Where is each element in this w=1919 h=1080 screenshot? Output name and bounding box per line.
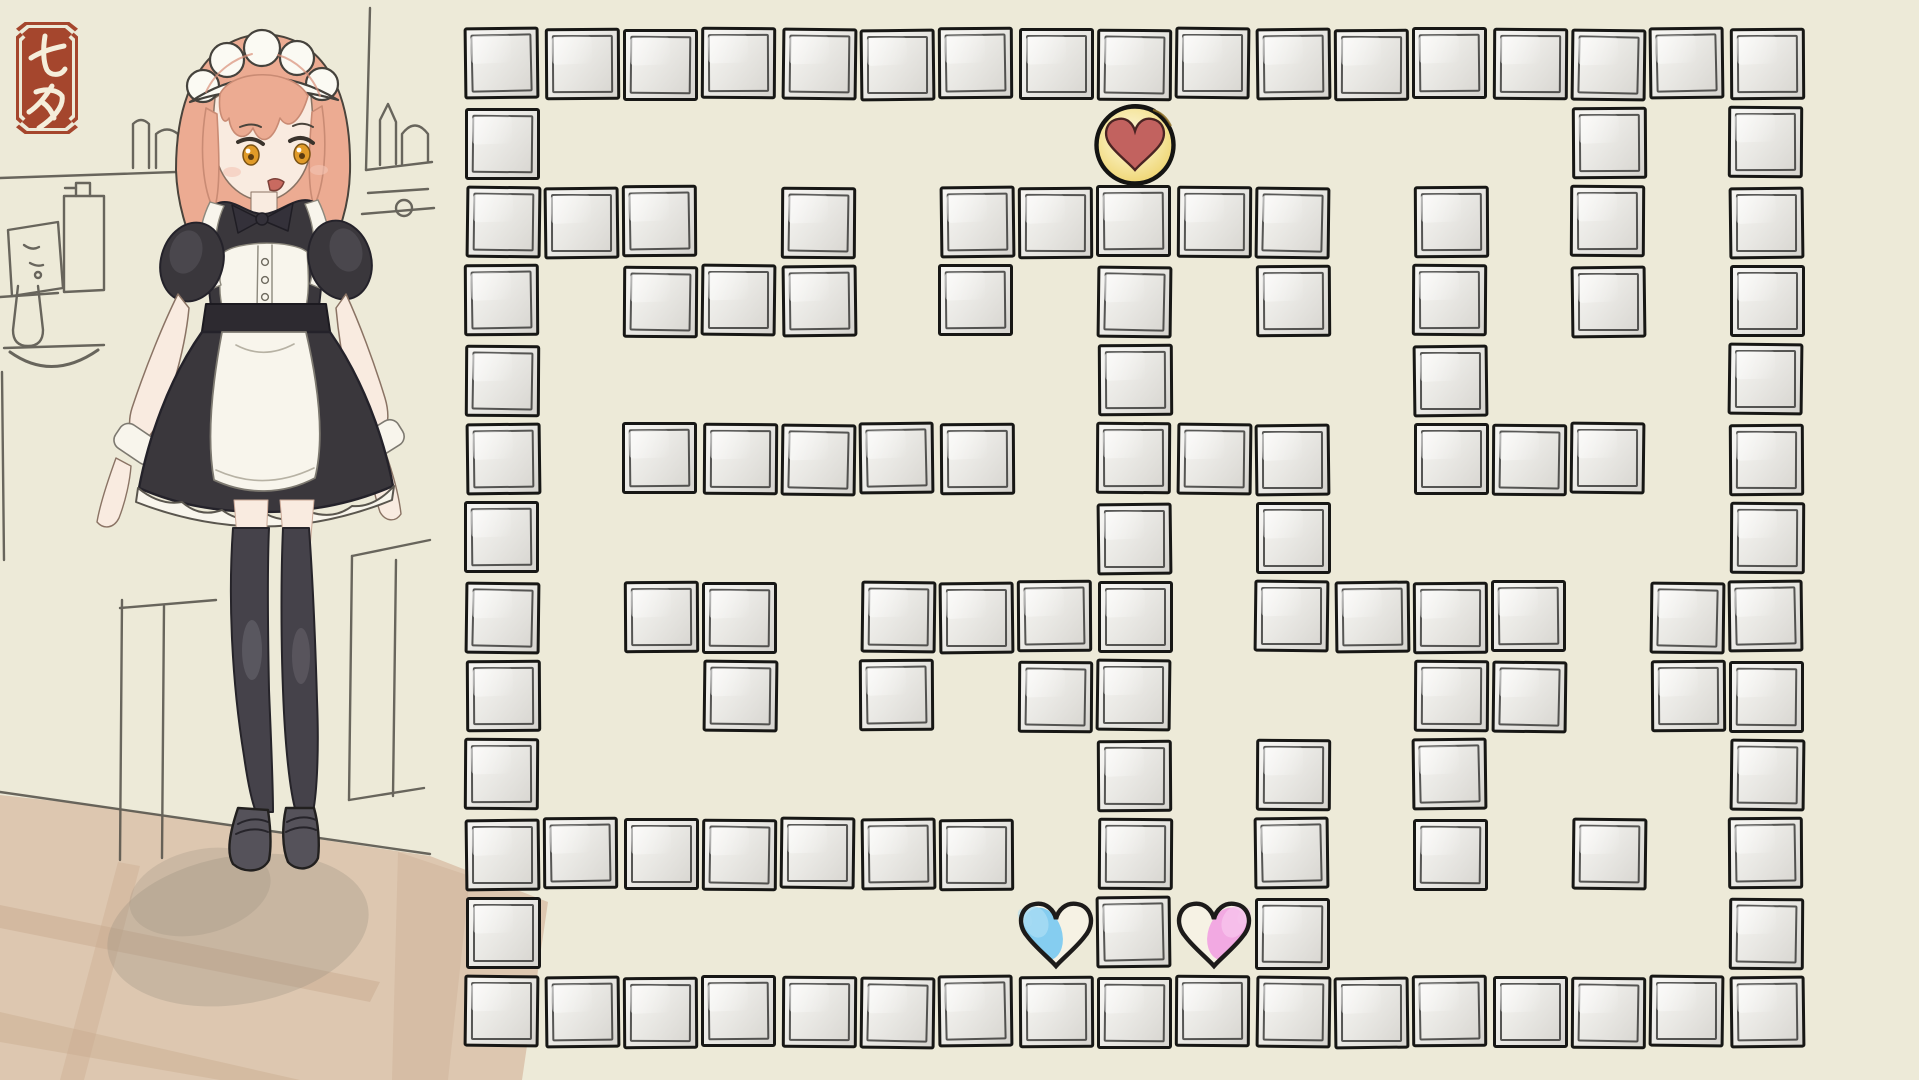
maze-wall-block [466,186,542,259]
maze-wall-block [1412,264,1487,336]
maze-wall-block [1412,738,1488,811]
seal-characters [16,22,78,134]
maze-wall-block [1097,29,1172,101]
maze-wall-block [782,28,858,101]
maze-wall-block [702,582,777,654]
maze-wall-block [1649,975,1725,1048]
maze-wall-block [782,265,858,338]
maze-wall-block [1097,977,1172,1049]
maze-wall-block [1414,186,1489,258]
maze-wall-block [1730,976,1806,1049]
maze-wall-block [465,819,541,892]
maze-wall-block [1255,187,1331,260]
maze-wall-block [464,738,539,810]
maze-wall-block [1096,896,1172,969]
maze-wall-block [1097,740,1172,812]
maze-wall-block [861,581,937,654]
maze-wall-block [1098,581,1173,653]
maze-wall-block [1649,27,1725,100]
maze-wall-block [701,264,777,337]
maze-wall-block [1256,28,1332,101]
maze-wall-block [1177,423,1253,496]
maze-wall-block [1571,977,1646,1049]
maze-wall-block [1256,739,1331,811]
maze-wall-block [464,264,539,336]
maze-wall-block [859,422,935,495]
maze-wall-block [701,27,776,99]
maze-wall-block [1412,27,1487,99]
maze-wall-block [1728,106,1803,178]
maze-wall-block [861,818,937,891]
maze-wall-block [1018,187,1093,259]
maze-wall-block [1017,580,1092,652]
blue-heart-token[interactable] [1008,886,1104,982]
maze-wall-block [860,29,936,102]
maze-wall-block [465,582,541,655]
goal-heart-token[interactable] [1083,92,1187,196]
maze-wall-block [1729,187,1805,260]
maze-wall-block [1492,424,1567,496]
maze-wall-block [1571,266,1647,339]
maze-wall-block [1492,661,1568,734]
maze-wall-block [939,819,1014,891]
maze-wall-block [1096,422,1171,494]
maze-wall-block [624,581,699,653]
maze-wall-block [1098,818,1173,890]
maze-wall-block [1729,898,1804,970]
maze-wall-block [859,659,934,731]
maze-wall-block [1728,817,1803,889]
maze-wall-block [1493,976,1568,1048]
maze-wall-block [701,975,776,1047]
maze-wall-block [780,817,856,890]
maze-wall-block [1019,28,1094,100]
maze-wall-block [466,897,541,969]
maze-wall-block [1572,818,1648,891]
maze-wall-block [1256,976,1332,1049]
maze-wall-block [782,976,857,1048]
maze-wall-block [1098,344,1173,416]
maze-wall-block [1412,975,1487,1047]
maze-wall-block [622,185,697,257]
maze-wall-block [781,424,857,497]
apron [211,332,320,491]
maze-wall-block [1571,29,1647,102]
maze-wall-block [1728,580,1804,653]
maze-wall-block [1254,817,1330,890]
maze-wall-block [1256,265,1331,337]
maze-wall-block [623,977,698,1049]
maze-wall-block [1018,661,1093,733]
maze-wall-block [1335,581,1411,654]
maze-wall-block [1570,185,1645,257]
maze-wall-block [543,817,618,889]
maze-wall-block [702,819,777,891]
maze-wall-block [464,975,540,1048]
maze-wall-block [1019,976,1094,1048]
maze-wall-block [1334,29,1409,101]
maze-wall-block [466,423,542,496]
maze-wall-block [1493,28,1568,100]
maze-wall-block [860,977,936,1050]
maze-wall-block [545,28,620,100]
maze-wall-block [1175,27,1251,100]
maze-wall-block [1729,424,1804,496]
maze-wall-block [464,501,539,573]
maze-wall-block [940,186,1016,259]
game-stage [0,0,1919,1080]
maze-wall-block [623,29,698,101]
maze-wall-block [1096,185,1171,257]
maze-wall-block [1730,28,1805,100]
maze-wall-block [939,582,1015,655]
maze-wall-block [1254,580,1330,653]
maze-wall-block [1175,975,1250,1047]
maze-wall-block [703,660,779,733]
maze-wall-block [1651,660,1726,732]
maze-wall-block [1414,660,1489,732]
maze-wall-block [464,27,540,100]
maze-wall-block [1413,345,1489,418]
maze-wall-block [1255,424,1331,497]
qixi-seal [16,22,78,134]
maze-wall-block [1413,582,1488,654]
maze-wall-block [1491,580,1566,652]
maze-wall-block [1570,422,1646,495]
maze-wall-block [544,187,620,260]
maze-wall-block [781,187,856,259]
maze-wall-block [1097,503,1173,576]
maze-wall-block [624,818,699,890]
maze-wall-block [1728,343,1804,416]
maze-wall-block [1177,186,1252,258]
maze-wall-block [623,266,698,338]
maze-wall-block [545,976,621,1049]
maze-wall-block [465,345,540,417]
maze-wall-block [1730,739,1806,812]
maze-wall-block [1730,265,1805,337]
maze-wall-block [1413,819,1488,891]
maid-character-illustration [0,0,460,1080]
maze-wall-block [622,422,697,494]
maze-wall-block [1729,661,1804,733]
maze-wall-block [938,264,1013,336]
maze-wall-block [465,108,540,180]
maze-wall-block [1334,977,1410,1050]
maze-wall-block [1255,898,1330,970]
maze-wall-block [1650,582,1726,655]
maze-wall-block [1730,502,1805,574]
maze-wall-block [1256,502,1331,574]
maze-wall-block [1572,107,1647,179]
maze-wall-block [1097,266,1173,339]
maze-wall-block [1414,423,1489,495]
maze-wall-block [703,423,778,495]
maze-wall-block [466,660,541,732]
maze-wall-block [938,27,1013,99]
maze-wall-block [1096,659,1172,732]
pink-heart-token[interactable] [1166,886,1262,982]
maze-wall-block [940,423,1015,495]
maze-wall-block [938,975,1014,1048]
